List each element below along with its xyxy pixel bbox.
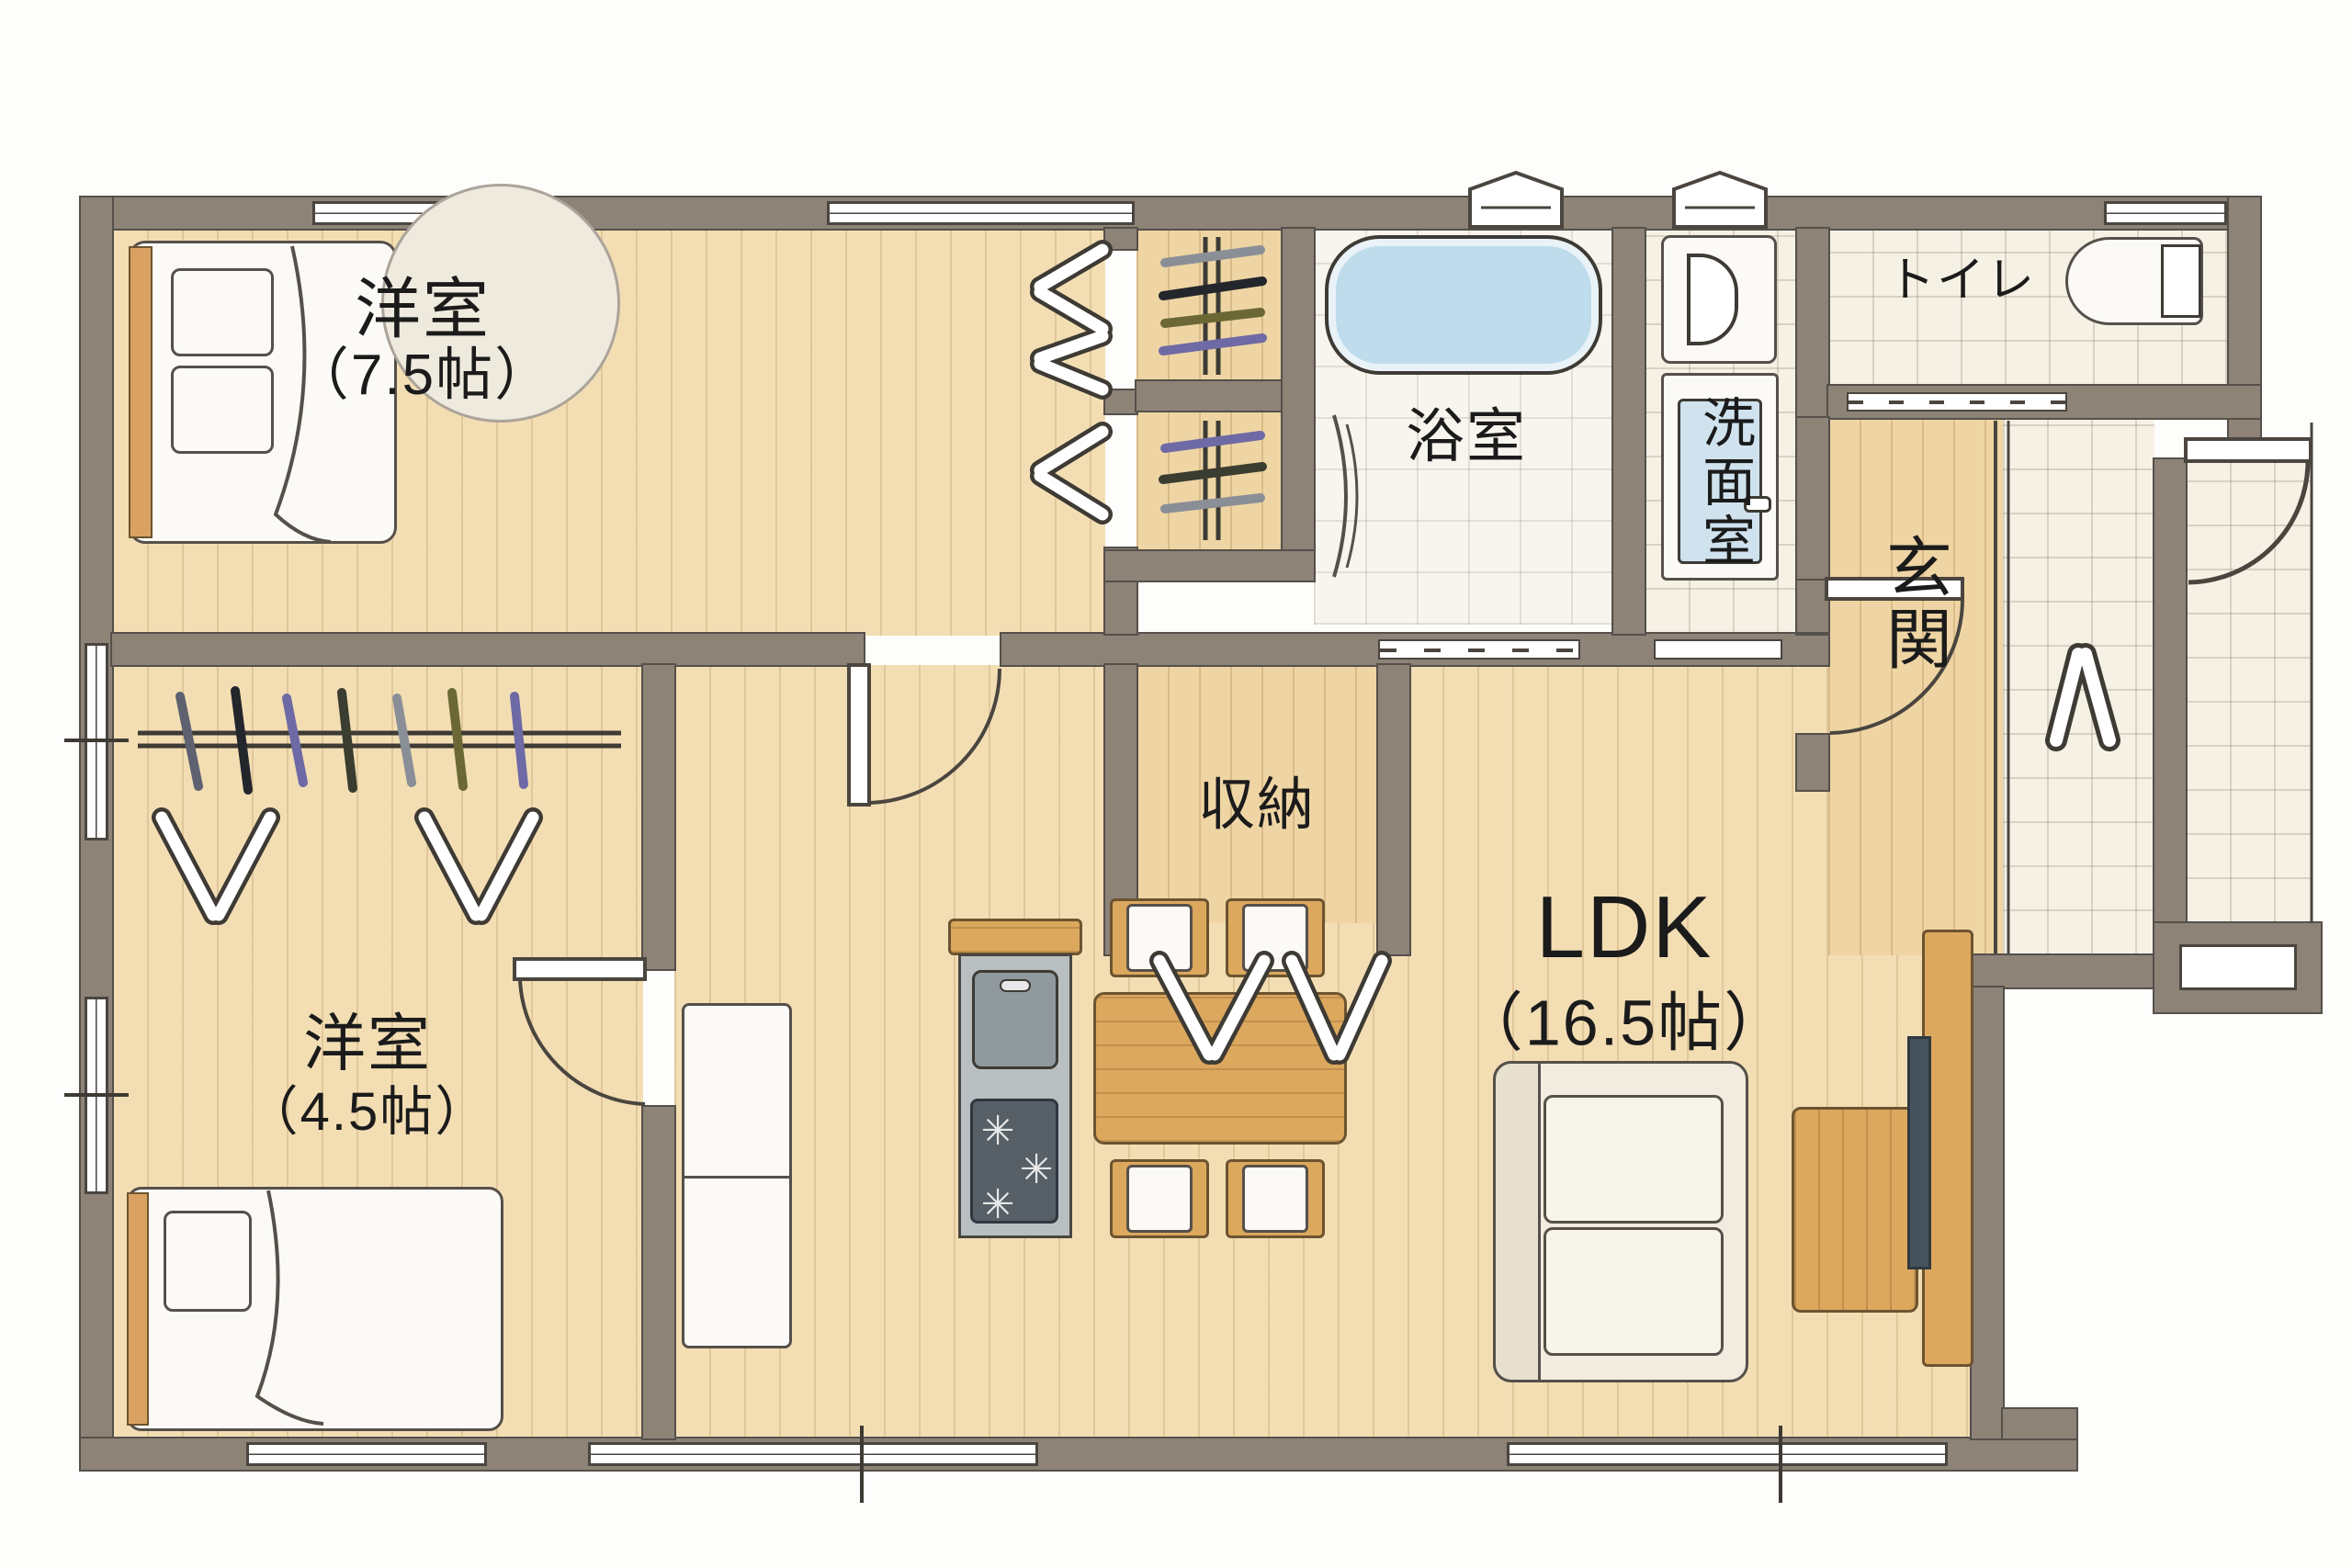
plan-linework: ✳✳✳ xyxy=(0,0,2352,1568)
stove-burners: ✳✳✳ xyxy=(981,1109,1054,1227)
bifold-roomB-closet xyxy=(162,818,533,915)
label-entrance: 玄関 xyxy=(1865,533,1962,676)
svg-text:✳: ✳ xyxy=(981,1109,1015,1154)
label-western75-size: （7.5帖） xyxy=(292,328,553,411)
closet-hangers-roomB xyxy=(138,691,621,790)
label-storage: 収納 xyxy=(1198,758,1316,840)
svg-text:✳: ✳ xyxy=(1020,1147,1054,1192)
shoes-mark xyxy=(2056,654,2109,740)
label-ldk-name: LDK xyxy=(1536,877,1713,978)
bifold-closet-upper xyxy=(1040,250,1102,389)
closet-hangers-lower xyxy=(1163,421,1262,540)
svg-text:✳: ✳ xyxy=(981,1182,1015,1227)
vent-window-washroom xyxy=(1674,173,1766,227)
door-roomB xyxy=(514,959,645,1104)
bifold-closet-lower xyxy=(1040,432,1102,514)
floor-plan: ✳✳✳ 洋室 （7.5帖） 洋室 （4.5帖） 浴室 洗面室 トイレ 玄関 収納… xyxy=(0,0,2352,1568)
bath-screen-2 xyxy=(1347,424,1357,568)
bath-screen xyxy=(1334,415,1346,577)
door-roomA xyxy=(849,665,1000,805)
label-bath: 浴室 xyxy=(1406,389,1527,474)
genkan-step-edge xyxy=(1996,421,2008,953)
bifold-storage xyxy=(1159,961,1382,1055)
label-toilet: トイレ xyxy=(1887,242,2036,310)
label-washroom: 洗面室 xyxy=(1685,395,1762,571)
single-bed-duvet xyxy=(257,1190,323,1424)
closet-hangers-upper xyxy=(1163,237,1262,375)
door-entrance-front xyxy=(2186,423,2312,923)
vent-window-bath xyxy=(1470,173,1562,227)
label-western45-size: （4.5帖） xyxy=(245,1068,491,1145)
label-ldk-size: （16.5帖） xyxy=(1459,972,1790,1065)
